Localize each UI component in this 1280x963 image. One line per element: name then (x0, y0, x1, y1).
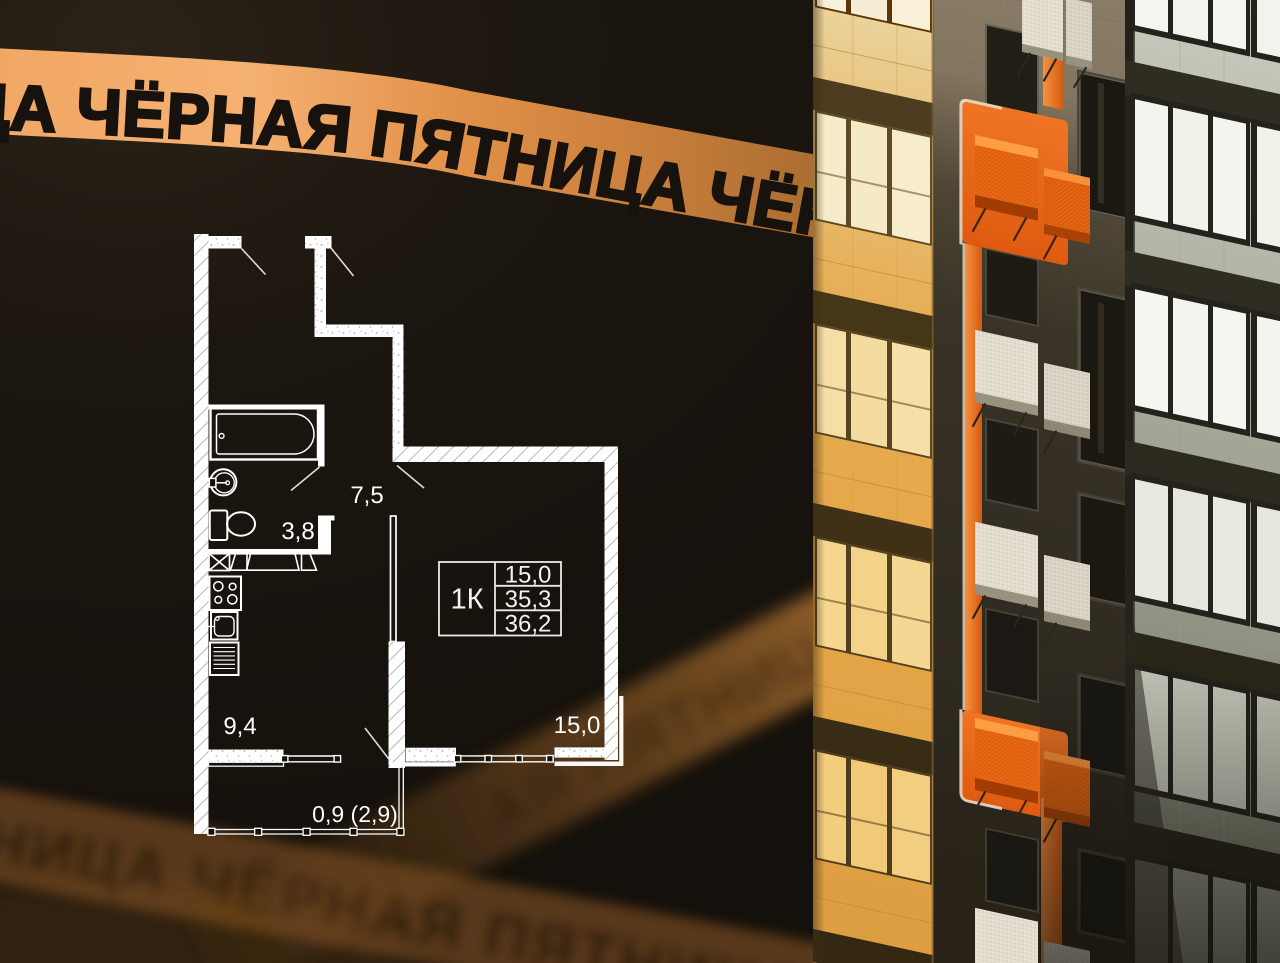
svg-text:9,4: 9,4 (223, 713, 256, 740)
svg-text:15,0: 15,0 (554, 712, 601, 739)
svg-text:7,5: 7,5 (350, 482, 383, 509)
svg-text:15,0: 15,0 (505, 562, 552, 589)
svg-text:0,9 (2,9): 0,9 (2,9) (312, 801, 398, 827)
svg-text:1К: 1К (450, 584, 483, 616)
svg-text:3,8: 3,8 (281, 518, 314, 545)
svg-text:35,3: 35,3 (505, 586, 552, 613)
svg-text:36,2: 36,2 (505, 611, 552, 638)
